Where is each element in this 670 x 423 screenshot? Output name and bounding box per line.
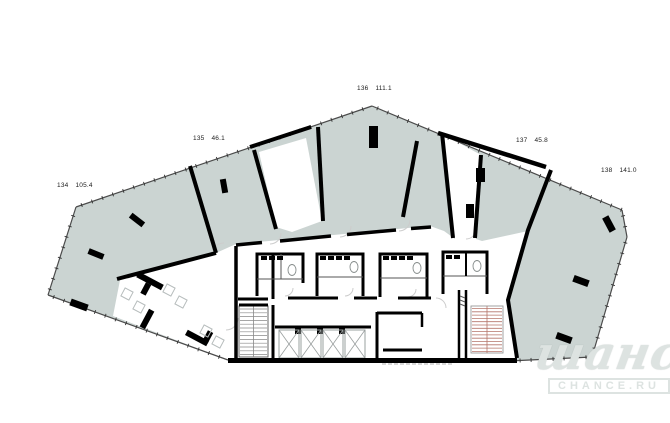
unit-label-136: 136111.1 (357, 85, 392, 92)
unit-label-137: 13745.8 (516, 137, 548, 144)
unit-label-138: 138141.0 (601, 167, 637, 174)
unit-label-134: 134105.4 (57, 182, 93, 189)
core-area (236, 226, 528, 361)
floor-plan-svg: 134105.4 13546.1 136111.1 13745.8 138141… (0, 0, 670, 423)
unit-label-135: 13546.1 (193, 135, 225, 142)
